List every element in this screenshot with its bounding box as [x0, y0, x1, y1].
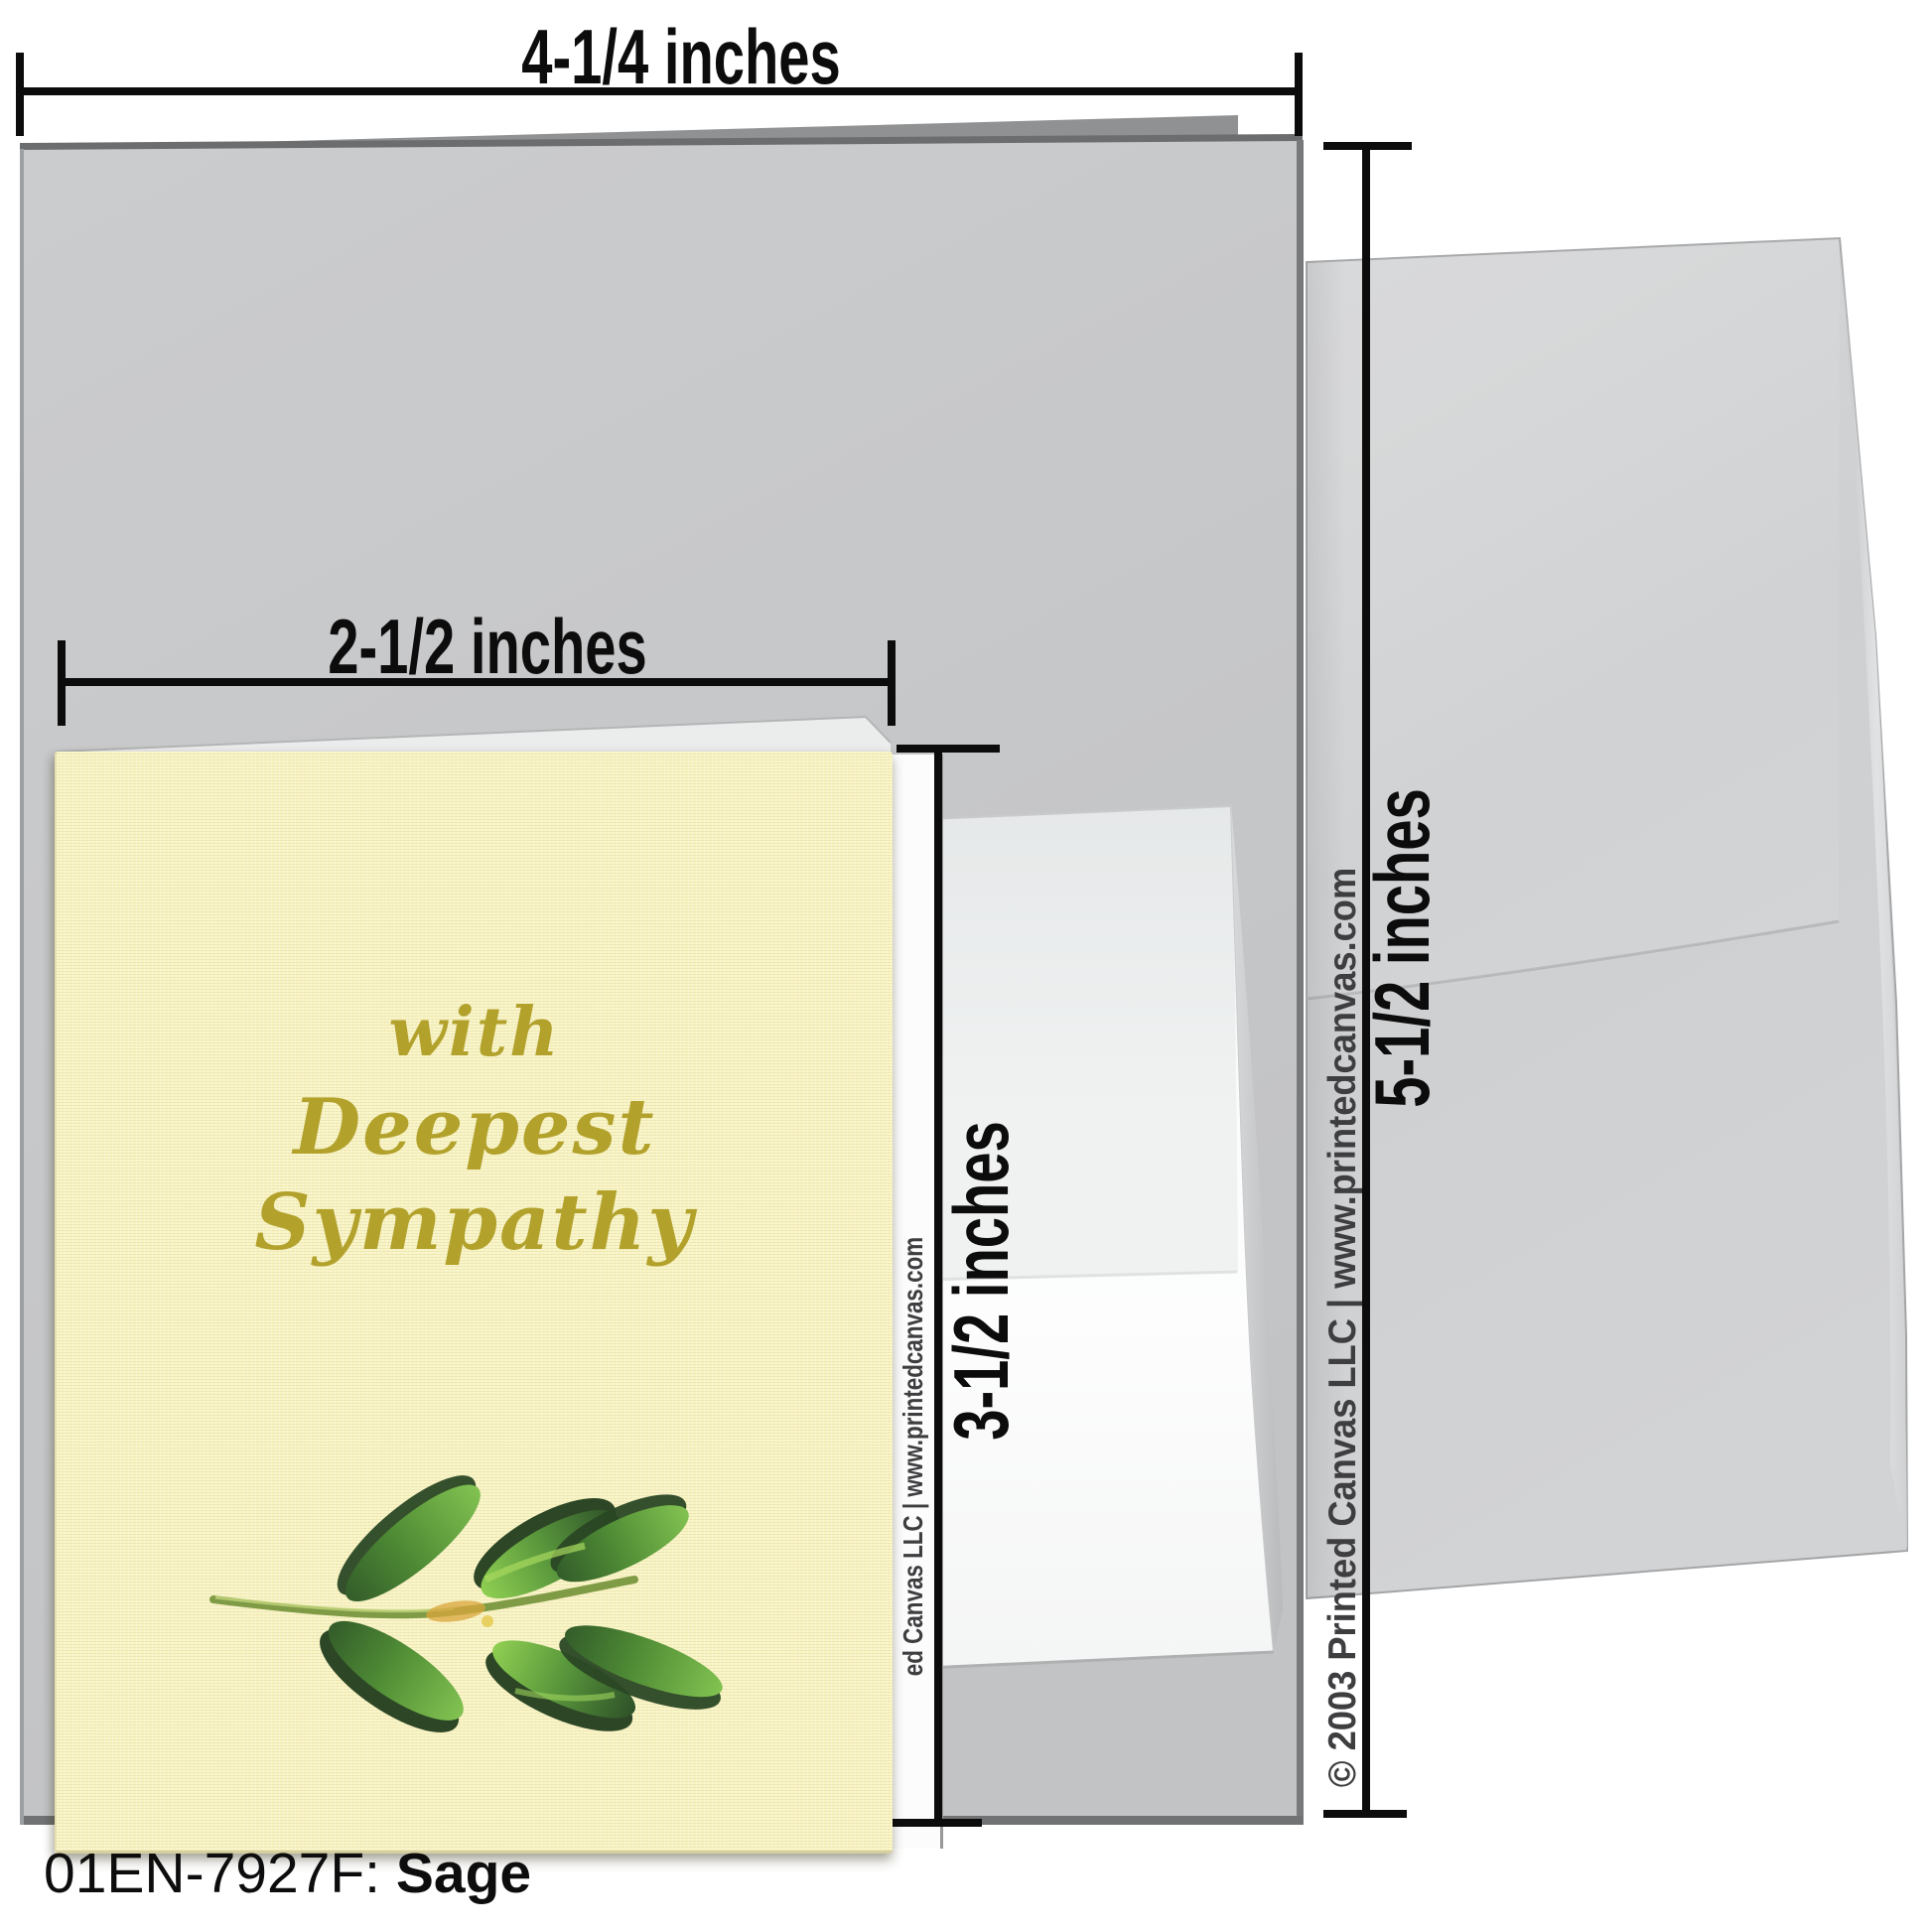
dim-label-card-width: 2-1/2 inches [202, 602, 773, 692]
dim-v3-tick-top [897, 745, 1000, 753]
card-message-line-2: Deepest [57, 1087, 893, 1169]
dim-mid-tick-left [58, 640, 66, 726]
sage-leaf-upper-left [322, 1462, 494, 1617]
copyright-small-card: ed Canvas LLC | www.printedcanvas.com [889, 1218, 938, 1695]
dim-mid-tick-right [888, 640, 896, 726]
dim-label-overall-width: 4-1/4 inches [395, 12, 967, 102]
product-sku: 01EN-7927F: [44, 1842, 380, 1905]
product-name: Sage [396, 1842, 531, 1905]
card-message-line-3: Sympathy [57, 1182, 893, 1264]
dim-v3-tick-bottom [893, 1819, 982, 1827]
dim-v5-tick-bottom [1323, 1810, 1407, 1818]
dim-v5-tick-top [1323, 142, 1412, 150]
dim-label-card-height: 3-1/2 inches [938, 995, 1024, 1567]
small-card-front: with Deepest Sympathy [55, 752, 893, 1854]
dim-label-envelope-height: 5-1/2 inches [1359, 662, 1445, 1234]
sage-leaf-lower-left [305, 1604, 477, 1750]
sage-branch-illustration [158, 1462, 734, 1750]
greeting-card-product-mockup: with Deepest Sympathy [0, 0, 1932, 1932]
product-code: 01EN-7927F: Sage [44, 1841, 531, 1906]
dim-top-tick-right [1295, 53, 1303, 136]
card-message-line-1: with [57, 997, 893, 1068]
dim-top-tick-left [16, 53, 24, 136]
